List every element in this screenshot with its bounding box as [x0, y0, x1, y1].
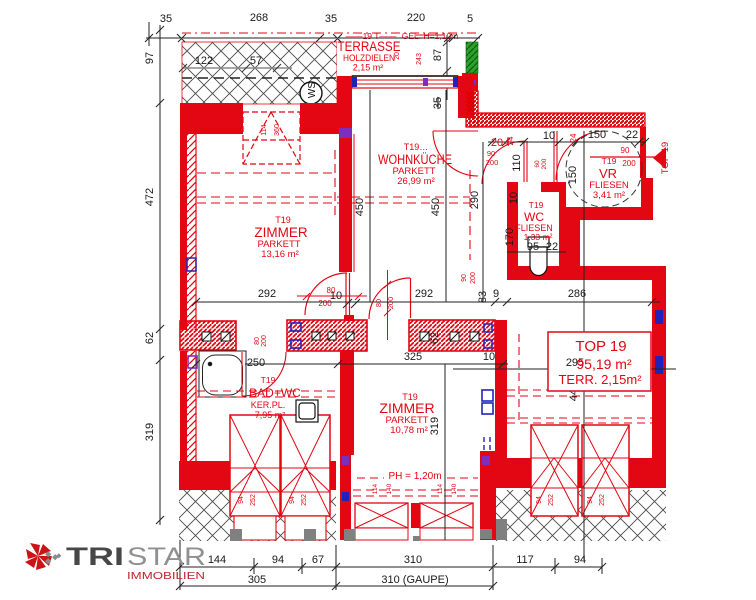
svg-text:170: 170 — [504, 228, 516, 246]
svg-text:STAR: STAR — [127, 543, 206, 571]
svg-text:94: 94 — [272, 554, 284, 566]
svg-text:450: 450 — [430, 198, 442, 216]
svg-text:VR: VR — [599, 166, 617, 181]
svg-text:87: 87 — [432, 49, 444, 61]
svg-text:200: 200 — [470, 272, 477, 284]
svg-text:57: 57 — [250, 55, 262, 67]
svg-text:5: 5 — [467, 13, 473, 25]
svg-text:TERR. 2,15m²: TERR. 2,15m² — [558, 372, 642, 387]
svg-text:13,16 m²: 13,16 m² — [261, 249, 299, 260]
svg-text:T19…: T19… — [404, 142, 429, 152]
svg-text:20: 20 — [491, 137, 503, 149]
svg-text:200: 200 — [541, 158, 548, 169]
svg-text:94: 94 — [574, 554, 586, 566]
svg-text:62: 62 — [144, 332, 156, 344]
svg-text:360: 360 — [274, 124, 281, 136]
svg-text:200: 200 — [622, 159, 636, 168]
svg-text:10: 10 — [508, 192, 520, 204]
svg-text:325: 325 — [404, 351, 422, 363]
svg-text:T19: T19 — [261, 375, 276, 385]
svg-text:62: 62 — [429, 332, 441, 344]
svg-text:TERRASSE: TERRASSE — [338, 39, 401, 54]
svg-text:114: 114 — [261, 124, 268, 135]
svg-text:310: 310 — [404, 554, 422, 566]
svg-text:T19: T19 — [602, 156, 617, 166]
svg-text:26,99 m²: 26,99 m² — [397, 176, 435, 187]
svg-text:35: 35 — [432, 97, 444, 109]
svg-text:WS: WS — [307, 82, 318, 98]
svg-text:94: 94 — [587, 496, 594, 504]
svg-text:10: 10 — [330, 290, 342, 302]
svg-text:140: 140 — [451, 483, 458, 494]
svg-text:94: 94 — [238, 496, 245, 504]
svg-text:T19: T19 — [529, 200, 544, 210]
svg-text:310 (GAUPE): 310 (GAUPE) — [381, 574, 448, 586]
svg-text:60: 60 — [534, 160, 541, 168]
svg-text:243: 243 — [416, 53, 423, 65]
svg-text:22: 22 — [626, 129, 638, 141]
svg-text:97: 97 — [144, 52, 156, 64]
svg-text:144: 144 — [208, 554, 226, 566]
svg-text:95: 95 — [527, 241, 539, 253]
svg-text:286: 286 — [568, 288, 586, 300]
svg-text:HOLZDIELEN: HOLZDIELEN — [343, 53, 395, 63]
svg-text:252: 252 — [599, 494, 606, 506]
svg-text:150: 150 — [588, 129, 606, 141]
svg-text:200: 200 — [386, 297, 395, 310]
svg-text:90: 90 — [621, 146, 630, 155]
svg-text:KER.PL.: KER.PL. — [251, 400, 286, 410]
svg-text:2,15 m²: 2,15 m² — [353, 63, 384, 73]
svg-text:250: 250 — [247, 357, 265, 369]
svg-text:TOP 19: TOP 19 — [660, 142, 671, 174]
svg-text:35: 35 — [325, 13, 337, 25]
svg-text:ZIMMER: ZIMMER — [379, 400, 434, 416]
svg-text:268: 268 — [250, 12, 268, 24]
svg-text:WC: WC — [524, 210, 544, 224]
svg-text:20: 20 — [394, 52, 401, 60]
svg-text:10,78 m²: 10,78 m² — [390, 425, 428, 436]
svg-text:292: 292 — [258, 288, 276, 300]
svg-text:22: 22 — [546, 241, 558, 253]
svg-text:114: 114 — [437, 483, 444, 494]
svg-text:35: 35 — [160, 13, 172, 25]
svg-text:24: 24 — [569, 133, 578, 142]
svg-text:252: 252 — [301, 494, 308, 506]
svg-text:10: 10 — [543, 130, 555, 142]
svg-text:252: 252 — [548, 494, 555, 506]
svg-text:319: 319 — [144, 423, 156, 441]
svg-text:WOHNKÜCHE: WOHNKÜCHE — [378, 152, 452, 167]
svg-text:T19: T19 — [275, 215, 291, 225]
svg-text:319: 319 — [429, 417, 441, 435]
svg-text:TOP 19: TOP 19 — [575, 338, 626, 355]
svg-text:PH = 1,20m: PH = 1,20m — [388, 471, 441, 482]
svg-text:TRI: TRI — [66, 543, 124, 571]
svg-text:7,95 m²: 7,95 m² — [255, 410, 286, 420]
svg-text:94: 94 — [289, 496, 296, 504]
svg-text:ZIMMER: ZIMMER — [254, 225, 307, 240]
svg-text:450: 450 — [354, 198, 366, 216]
svg-text:200: 200 — [261, 335, 268, 347]
svg-text:220: 220 — [407, 12, 425, 24]
svg-text:472: 472 — [144, 188, 156, 206]
svg-text:IMMOBILIEN: IMMOBILIEN — [127, 570, 205, 582]
svg-text:110: 110 — [511, 154, 523, 172]
svg-text:114: 114 — [372, 483, 379, 494]
svg-text:9: 9 — [493, 288, 499, 300]
svg-text:90: 90 — [461, 274, 468, 282]
svg-text:290: 290 — [469, 191, 481, 209]
svg-text:10: 10 — [483, 351, 495, 363]
svg-text:150: 150 — [567, 166, 579, 184]
svg-text:305: 305 — [248, 574, 266, 586]
svg-text:1,33 m²: 1,33 m² — [524, 232, 553, 242]
svg-text:80: 80 — [374, 299, 383, 307]
svg-text:3,41 m²: 3,41 m² — [593, 190, 625, 201]
svg-text:140: 140 — [386, 483, 393, 494]
svg-text:BAD+WC: BAD+WC — [249, 386, 301, 400]
svg-text:67: 67 — [312, 554, 324, 566]
svg-text:122: 122 — [195, 55, 213, 67]
svg-text:117: 117 — [516, 554, 534, 566]
svg-text:95,19 m²: 95,19 m² — [576, 356, 632, 372]
svg-text:94: 94 — [536, 496, 543, 504]
svg-text:80: 80 — [254, 337, 261, 345]
svg-text:24: 24 — [506, 136, 515, 145]
svg-text:252: 252 — [250, 494, 257, 506]
svg-text:292: 292 — [415, 288, 433, 300]
